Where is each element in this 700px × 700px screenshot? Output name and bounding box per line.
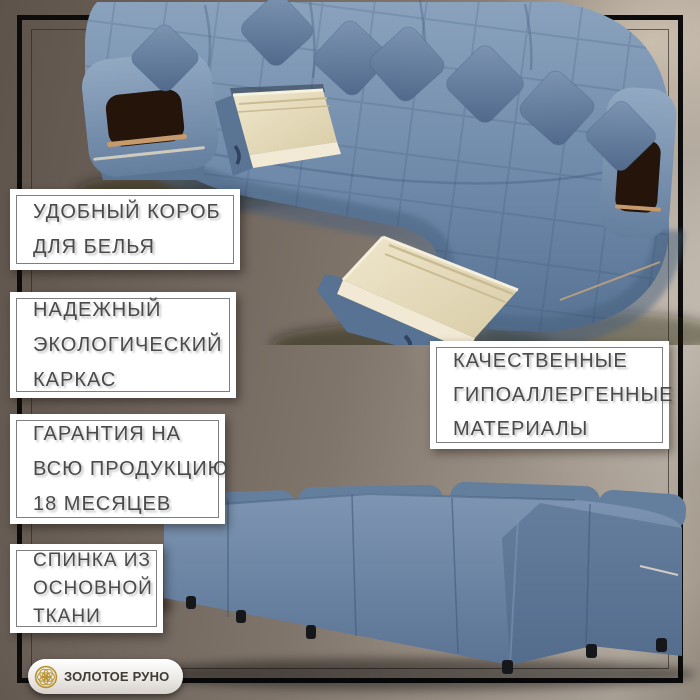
callout-linen-box: УДОБНЫЙ КОРОБ ДЛЯ БЕЛЬЯ (10, 189, 240, 270)
callout-materials: КАЧЕСТВЕННЫЕ ГИПОАЛЛЕРГЕННЫЕ МАТЕРИАЛЫ (430, 341, 669, 449)
callout-line: ДЛЯ БЕЛЬЯ (33, 230, 240, 265)
callout-line: ОСНОВНОЙ (33, 575, 163, 603)
callout-line: МАТЕРИАЛЫ (453, 412, 669, 446)
callout-line: УДОБНЫЙ КОРОБ (33, 195, 240, 230)
callout-line: КАЧЕСТВЕННЫЕ (453, 344, 669, 378)
callout-line: КАРКАС (33, 363, 236, 398)
product-card: УДОБНЫЙ КОРОБ ДЛЯ БЕЛЬЯ НАДЕЖНЫЙ ЭКОЛОГИ… (0, 0, 700, 700)
callout-line: ЭКОЛОГИЧЕСКИЙ (33, 328, 236, 363)
callout-line: ГАРАНТИЯ НА (33, 417, 225, 452)
callout-line: НАДЕЖНЫЙ (33, 293, 236, 328)
callout-eco-frame: НАДЕЖНЫЙ ЭКОЛОГИЧЕСКИЙ КАРКАС (10, 292, 236, 398)
callout-back-fabric: СПИНКА ИЗ ОСНОВНОЙ ТКАНИ (10, 544, 163, 633)
callout-line: ВСЮ ПРОДУКЦИЮ (33, 452, 225, 487)
callout-line: 18 МЕСЯЦЕВ (33, 487, 225, 522)
callout-line: ТКАНИ (33, 603, 163, 631)
golden-fleece-emblem-icon (34, 665, 58, 689)
brand-logo: ЗОЛОТОЕ РУНО (28, 659, 183, 694)
callout-warranty: ГАРАНТИЯ НА ВСЮ ПРОДУКЦИЮ 18 МЕСЯЦЕВ (10, 414, 225, 524)
callout-line: СПИНКА ИЗ (33, 547, 163, 575)
callout-line: ГИПОАЛЛЕРГЕННЫЕ (453, 378, 669, 412)
brand-logo-text: ЗОЛОТОЕ РУНО (64, 669, 170, 684)
